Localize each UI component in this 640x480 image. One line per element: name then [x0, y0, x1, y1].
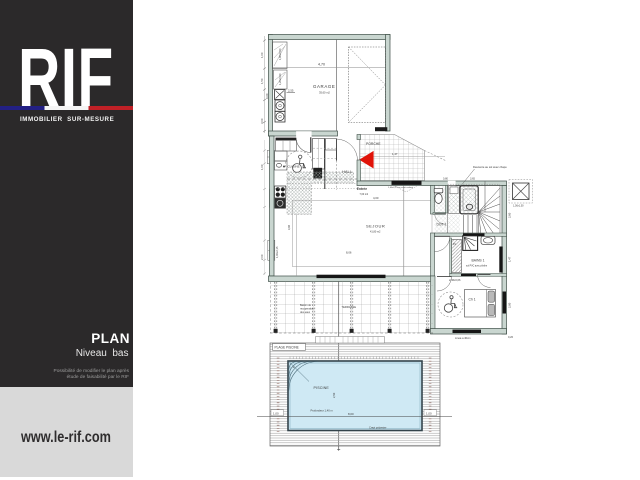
svg-text:1,00: 1,00: [426, 411, 432, 415]
svg-text:3,65: 3,65: [470, 178, 475, 181]
svg-text:1,00x2,15: 1,00x2,15: [275, 246, 279, 258]
svg-text:1,47: 1,47: [392, 152, 398, 156]
svg-text:1,50: 1,50: [260, 78, 264, 84]
svg-text:0,80: 0,80: [443, 178, 448, 181]
svg-text:3,96: 3,96: [287, 224, 291, 230]
svg-text:1,00: 1,00: [260, 164, 264, 170]
svg-text:CUISINE: CUISINE: [288, 165, 300, 169]
svg-text:PISCINE: PISCINE: [314, 386, 330, 390]
svg-text:2,60: 2,60: [508, 212, 512, 218]
svg-text:des eaux: des eaux: [300, 311, 311, 314]
svg-text:3,00: 3,00: [260, 118, 264, 124]
svg-text:1,47: 1,47: [508, 256, 512, 262]
svg-text:SEJOUR: SEJOUR: [366, 224, 385, 229]
svg-text:2,50: 2,50: [332, 392, 336, 398]
svg-text:35,60 m2: 35,60 m2: [319, 91, 330, 95]
svg-text:BAINS 1: BAINS 1: [472, 259, 485, 263]
svg-text:1,00: 1,00: [260, 52, 264, 58]
svg-text:1,40x2,15 av volet roulant: 1,40x2,15 av volet roulant: [388, 186, 413, 189]
svg-text:1,20x0,60: 1,20x0,60: [278, 73, 282, 85]
svg-text:2,00: 2,00: [260, 254, 264, 260]
svg-text:Profondeur 1,40 m: Profondeur 1,40 m: [311, 409, 334, 413]
svg-text:GARAGE: GARAGE: [313, 84, 335, 89]
svg-text:PORCHE: PORCHE: [366, 142, 381, 146]
svg-text:2,80: 2,80: [508, 302, 512, 308]
svg-text:PLAGE PISCINE: PLAGE PISCINE: [275, 346, 299, 350]
svg-text:8,00: 8,00: [348, 412, 354, 416]
svg-text:sol PVC avec plinthe: sol PVC avec plinthe: [466, 265, 488, 268]
svg-text:Entrée: Entrée: [357, 187, 367, 191]
svg-text:DGT 1: DGT 1: [437, 223, 447, 227]
svg-text:0,60: 0,60: [265, 93, 269, 99]
svg-text:TERRASSE: TERRASSE: [342, 305, 357, 309]
svg-text:4,00: 4,00: [373, 196, 379, 200]
svg-text:1,00x1,00: 1,00x1,00: [513, 205, 524, 208]
svg-text:Linea a 40cm: Linea a 40cm: [455, 336, 471, 340]
svg-text:Crepi polyester: Crepi polyester: [369, 426, 387, 430]
svg-text:1,00: 1,00: [273, 411, 279, 415]
svg-text:1,80x0,60: 1,80x0,60: [278, 48, 282, 60]
svg-text:8,06: 8,06: [346, 251, 352, 255]
svg-text:0,20: 0,20: [508, 335, 514, 339]
svg-text:7,60 m2: 7,60 m2: [360, 193, 369, 196]
svg-text:Descente au sol avec chape: Descente au sol avec chape: [473, 165, 507, 169]
svg-text:Ch 1: Ch 1: [469, 298, 476, 302]
svg-text:4,70: 4,70: [318, 63, 325, 67]
svg-text:41,80 m2: 41,80 m2: [370, 231, 381, 234]
svg-text:PL: PL: [453, 242, 457, 246]
svg-text:2,55: 2,55: [288, 89, 294, 93]
